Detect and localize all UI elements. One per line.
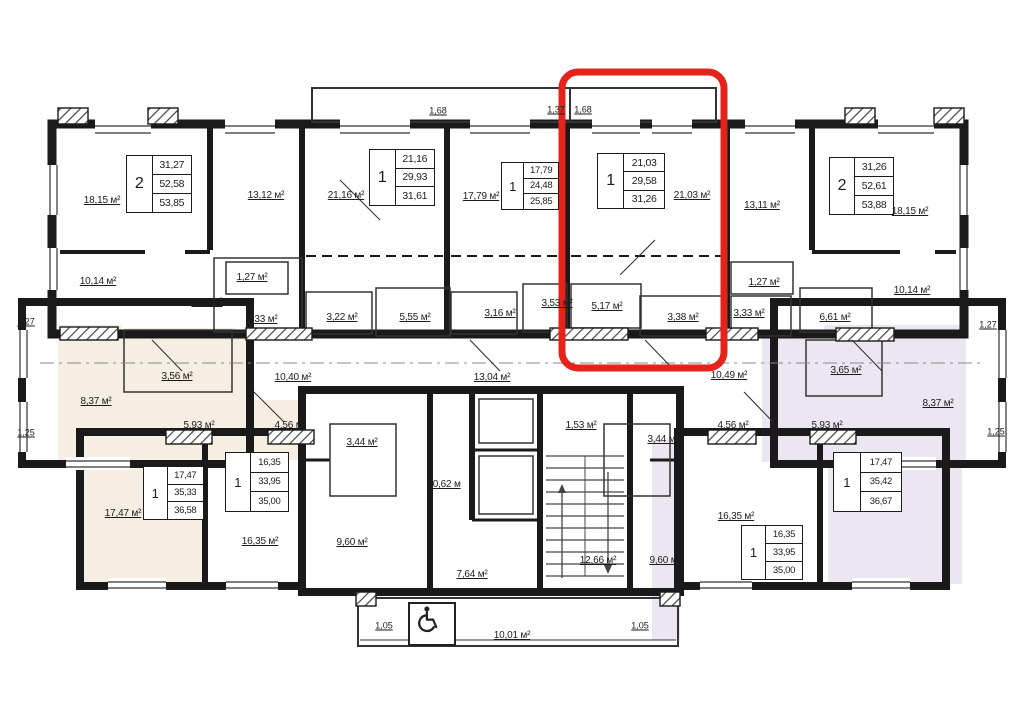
dimension-label: 1,25 bbox=[17, 429, 35, 438]
area-value: 52,58 bbox=[153, 175, 191, 194]
room-area-label: 3,53 м² bbox=[541, 299, 572, 309]
wheelchair-icon bbox=[408, 602, 456, 646]
room-area-label: 10,40 м² bbox=[275, 373, 311, 383]
area-value: 33,95 bbox=[766, 544, 802, 562]
area-value: 31,27 bbox=[153, 156, 191, 175]
dimension-label: 1,25 bbox=[987, 428, 1005, 437]
apartment-info-table-highlighted: 1 21,03 29,58 31,26 bbox=[597, 153, 665, 209]
room-area-label: 3,33 м² bbox=[733, 309, 764, 319]
room-area-label: 4,56 м² bbox=[717, 421, 748, 431]
area-value: 35,33 bbox=[168, 485, 203, 503]
room-area-label: 9,60 м² bbox=[336, 538, 367, 548]
room-area-label: 13,04 м² bbox=[474, 373, 510, 383]
room-area-label: 3,38 м² bbox=[667, 313, 698, 323]
room-count: 1 bbox=[834, 453, 861, 511]
floor-plan-drawing bbox=[0, 0, 1024, 723]
area-value: 35,00 bbox=[766, 562, 802, 579]
area-value: 21,03 bbox=[624, 154, 664, 172]
room-area-label: 3,44 м² bbox=[346, 438, 377, 448]
room-area-label: 12,66 м² bbox=[580, 556, 616, 566]
area-value: 16,35 bbox=[251, 453, 288, 473]
dimension-label: 1,68 bbox=[574, 106, 592, 115]
area-value: 16,35 bbox=[766, 526, 802, 544]
room-area-label: 1,53 м² bbox=[565, 421, 596, 431]
room-area-label: 7,64 м² bbox=[456, 570, 487, 580]
room-area-label: 8,37 м² bbox=[922, 399, 953, 409]
room-area-label: 3,33 м² bbox=[246, 315, 277, 325]
room-area-label: 10,14 м² bbox=[894, 286, 930, 296]
room-area-label: 8,37 м² bbox=[80, 397, 111, 407]
room-area-label: 3,44 м² bbox=[647, 435, 678, 445]
room-area-label: 10,49 м² bbox=[711, 371, 747, 381]
room-area-label: 17,47 м² bbox=[105, 509, 141, 519]
dimension-label: 1,05 bbox=[375, 622, 393, 631]
room-area-label: 18,15 м² bbox=[892, 207, 928, 217]
room-count: 1 bbox=[502, 163, 524, 209]
room-area-label: 3,16 м² bbox=[484, 309, 515, 319]
room-area-label: 5,93 м² bbox=[811, 421, 842, 431]
area-value: 31,26 bbox=[855, 158, 893, 177]
room-area-label: 6,61 м² bbox=[819, 313, 850, 323]
apartment-info-table: 1 21,16 29,93 31,61 bbox=[369, 149, 435, 206]
room-count: 1 bbox=[742, 526, 766, 579]
room-area-label: 3,65 м² bbox=[830, 366, 861, 376]
room-area-label: 13,11 м² bbox=[744, 201, 780, 211]
area-value: 17,79 bbox=[524, 163, 558, 179]
dimension-label: 1,27 bbox=[17, 318, 35, 327]
dimension-label: 1,68 bbox=[429, 107, 447, 116]
apartment-info-table: 1 17,47 35,33 36,58 bbox=[143, 466, 204, 520]
area-value: 31,61 bbox=[396, 187, 434, 205]
room-area-label: 17,79 м² bbox=[463, 192, 499, 202]
area-value: 52,61 bbox=[855, 177, 893, 196]
room-count: 1 bbox=[144, 467, 168, 519]
dimension-label: 1,37 bbox=[547, 106, 565, 115]
room-area-label: 18,15 м² bbox=[84, 196, 120, 206]
apartment-info-table: 1 17,47 35,42 36,67 bbox=[833, 452, 902, 512]
area-value: 21,16 bbox=[396, 150, 434, 169]
room-area-label: 5,93 м² bbox=[183, 421, 214, 431]
room-count: 1 bbox=[370, 150, 396, 205]
room-area-label: 6,57 м² bbox=[191, 298, 222, 308]
highlighted-apartment-outline[interactable] bbox=[562, 72, 724, 368]
room-area-label: 9,60 м² bbox=[649, 556, 680, 566]
room-area-label: 21,16 м² bbox=[328, 191, 364, 201]
room-count: 1 bbox=[226, 453, 251, 511]
area-value: 35,42 bbox=[861, 473, 901, 493]
room-area-label: 10,14 м² bbox=[80, 277, 116, 287]
area-value: 36,67 bbox=[861, 492, 901, 511]
room-count: 2 bbox=[127, 156, 153, 212]
room-area-label: 4,56 м² bbox=[274, 421, 305, 431]
apartment-info-table: 1 17,79 24,48 25,85 bbox=[501, 162, 559, 210]
room-area-label: 10,01 м² bbox=[494, 631, 530, 641]
area-value: 33,95 bbox=[251, 473, 288, 493]
right-wing-tint bbox=[652, 325, 966, 640]
area-value: 29,93 bbox=[396, 169, 434, 188]
room-count: 2 bbox=[830, 158, 855, 214]
apartment-info-table: 1 16,35 33,95 35,00 bbox=[741, 525, 803, 580]
area-value: 36,58 bbox=[168, 502, 203, 519]
room-area-label: 16,35 м² bbox=[242, 537, 278, 547]
room-area-label: 16,35 м² bbox=[718, 512, 754, 522]
room-area-label: 5,55 м² bbox=[399, 313, 430, 323]
room-area-label: 1,27 м² bbox=[748, 278, 779, 288]
apartment-info-table: 1 16,35 33,95 35,00 bbox=[225, 452, 289, 512]
area-value: 17,47 bbox=[168, 467, 203, 485]
dimension-label: 1,27 bbox=[979, 321, 997, 330]
room-area-label: 1,27 м² bbox=[236, 273, 267, 283]
dimension-label: 1,05 bbox=[631, 622, 649, 631]
apartment-info-table: 2 31,26 52,61 53,88 bbox=[829, 157, 894, 215]
room-area-label: 3,56 м² bbox=[161, 372, 192, 382]
room-area-label: 13,12 м² bbox=[248, 191, 284, 201]
area-value: 17,47 bbox=[861, 453, 901, 473]
floor-plan: 2 31,27 52,58 53,85 1 21,16 29,93 31,61 … bbox=[0, 0, 1024, 723]
area-value: 24,48 bbox=[524, 179, 558, 195]
room-area-label: 21,03 м² bbox=[674, 191, 710, 201]
room-area-label: 5,17 м² bbox=[591, 302, 622, 312]
area-value: 53,85 bbox=[153, 194, 191, 212]
area-value: 53,88 bbox=[855, 196, 893, 214]
area-value: 35,00 bbox=[251, 492, 288, 511]
room-count: 1 bbox=[598, 154, 624, 208]
area-value: 29,58 bbox=[624, 172, 664, 190]
area-value: 25,85 bbox=[524, 194, 558, 209]
room-area-label: 3,22 м² bbox=[326, 313, 357, 323]
room-area-label: 10,62 м bbox=[427, 480, 460, 490]
apartment-info-table: 2 31,27 52,58 53,85 bbox=[126, 155, 192, 213]
area-value: 31,26 bbox=[624, 191, 664, 208]
